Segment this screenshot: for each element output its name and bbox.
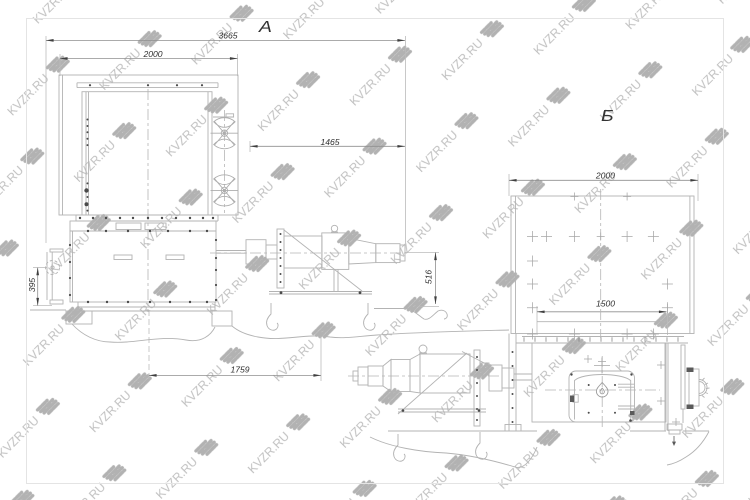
svg-text:2000: 2000 (142, 49, 162, 59)
svg-text:3665: 3665 (218, 31, 237, 41)
svg-text:516: 516 (424, 270, 434, 285)
svg-text:1465: 1465 (320, 137, 339, 147)
svg-text:1500: 1500 (596, 299, 615, 309)
svg-text:Б: Б (601, 107, 614, 125)
svg-text:2000: 2000 (595, 171, 615, 181)
svg-text:395: 395 (27, 278, 37, 293)
svg-text:А: А (258, 18, 272, 36)
svg-text:1759: 1759 (230, 365, 249, 375)
